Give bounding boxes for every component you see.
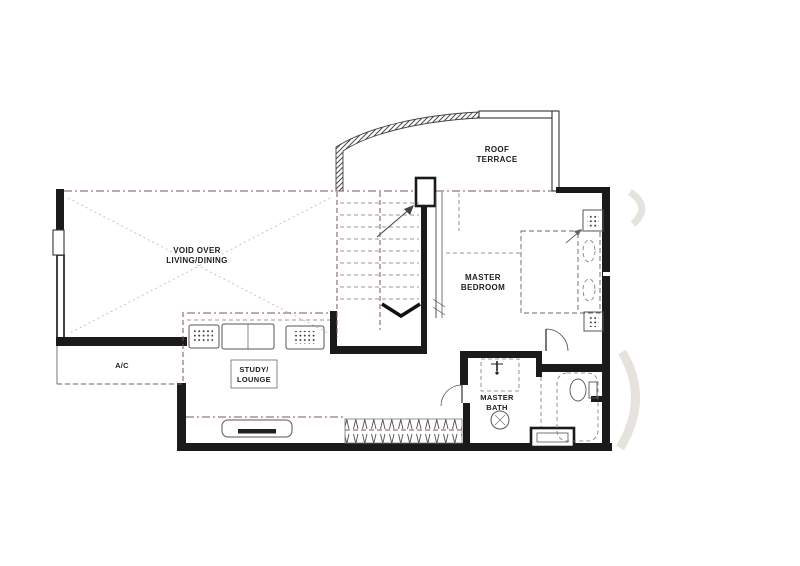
- bath-door-arc: [441, 385, 462, 406]
- bath-label-1: MASTER: [480, 393, 514, 402]
- wardrobe-outline: [345, 419, 462, 443]
- cabinet-3-grille: [293, 331, 315, 344]
- study-left-wall: [177, 383, 186, 451]
- void-area: VOID OVER LIVING/DINING: [68, 198, 330, 334]
- bath-top-wall: [460, 351, 540, 358]
- window-left: [53, 230, 64, 255]
- ac-ledge: A/C: [57, 312, 183, 384]
- master-bedroom: MASTER BEDROOM: [433, 192, 603, 351]
- void-label-1: VOID OVER: [173, 246, 221, 255]
- roof-terrace-label-1: ROOF: [485, 145, 510, 154]
- pillow-1: [583, 240, 595, 262]
- desk: [222, 420, 292, 437]
- stair-break-chevron: [382, 304, 420, 316]
- stair-arrowhead: [404, 205, 414, 215]
- wc-top-wall: [538, 364, 608, 372]
- stair-spine-wall: [421, 204, 427, 347]
- nightstand-bottom-grille: [588, 316, 599, 327]
- study-label-1: STUDY/: [239, 365, 269, 374]
- void-bottom-wall: [56, 337, 187, 346]
- toilet-icon: [570, 379, 597, 401]
- study-label-2: LOUNGE: [237, 375, 271, 384]
- cabinet-row: [189, 324, 324, 349]
- curved-parapet-wall: [336, 112, 479, 191]
- bath-bench: [531, 428, 574, 447]
- desk-shelf: [238, 429, 276, 434]
- terrace-top-wall: [479, 111, 557, 118]
- wc-door-arc: [546, 329, 568, 351]
- bath-left-wall-lower: [463, 403, 470, 445]
- terrace-right-wall: [552, 111, 559, 191]
- study-lounge: STUDY/ LOUNGE: [186, 360, 343, 437]
- roof-terrace-label-2: TERRACE: [476, 155, 517, 164]
- top-right-wall: [556, 187, 610, 193]
- ac-label: A/C: [115, 361, 129, 370]
- floor-plan-drawing: ROOF TERRACE VOID OVER LIVING/DINING: [0, 0, 800, 566]
- wc-stub-wall: [591, 396, 606, 402]
- roof-terrace: ROOF TERRACE: [336, 111, 559, 191]
- stair-direction-arrow: [377, 208, 411, 237]
- floor-plan-page: ROOF TERRACE VOID OVER LIVING/DINING: [0, 0, 800, 566]
- tap-icon: [491, 361, 503, 375]
- nightstand-top-grille: [587, 214, 599, 227]
- column: [416, 178, 435, 206]
- pillow-2: [583, 279, 595, 301]
- void-label-2: LIVING/DINING: [166, 256, 227, 265]
- cabinet-1-grille: [194, 330, 213, 343]
- bedroom-label-1: MASTER: [465, 273, 501, 282]
- wardrobe: [345, 419, 462, 443]
- left-wall-upper: [56, 189, 64, 232]
- left-wall-lower: [57, 255, 64, 339]
- bath-label-2: BATH: [486, 403, 507, 412]
- basin-icon: [491, 411, 509, 429]
- mid-wall-horizontal: [330, 346, 427, 354]
- bath-left-wall-upper: [460, 351, 468, 385]
- right-wall-joint: [603, 272, 610, 276]
- openings: [53, 178, 435, 255]
- balustrade: [187, 313, 330, 320]
- walls: [56, 187, 612, 451]
- staircase: [337, 192, 420, 337]
- bedroom-label-2: BEDROOM: [461, 283, 505, 292]
- scan-artifacts: [620, 192, 642, 448]
